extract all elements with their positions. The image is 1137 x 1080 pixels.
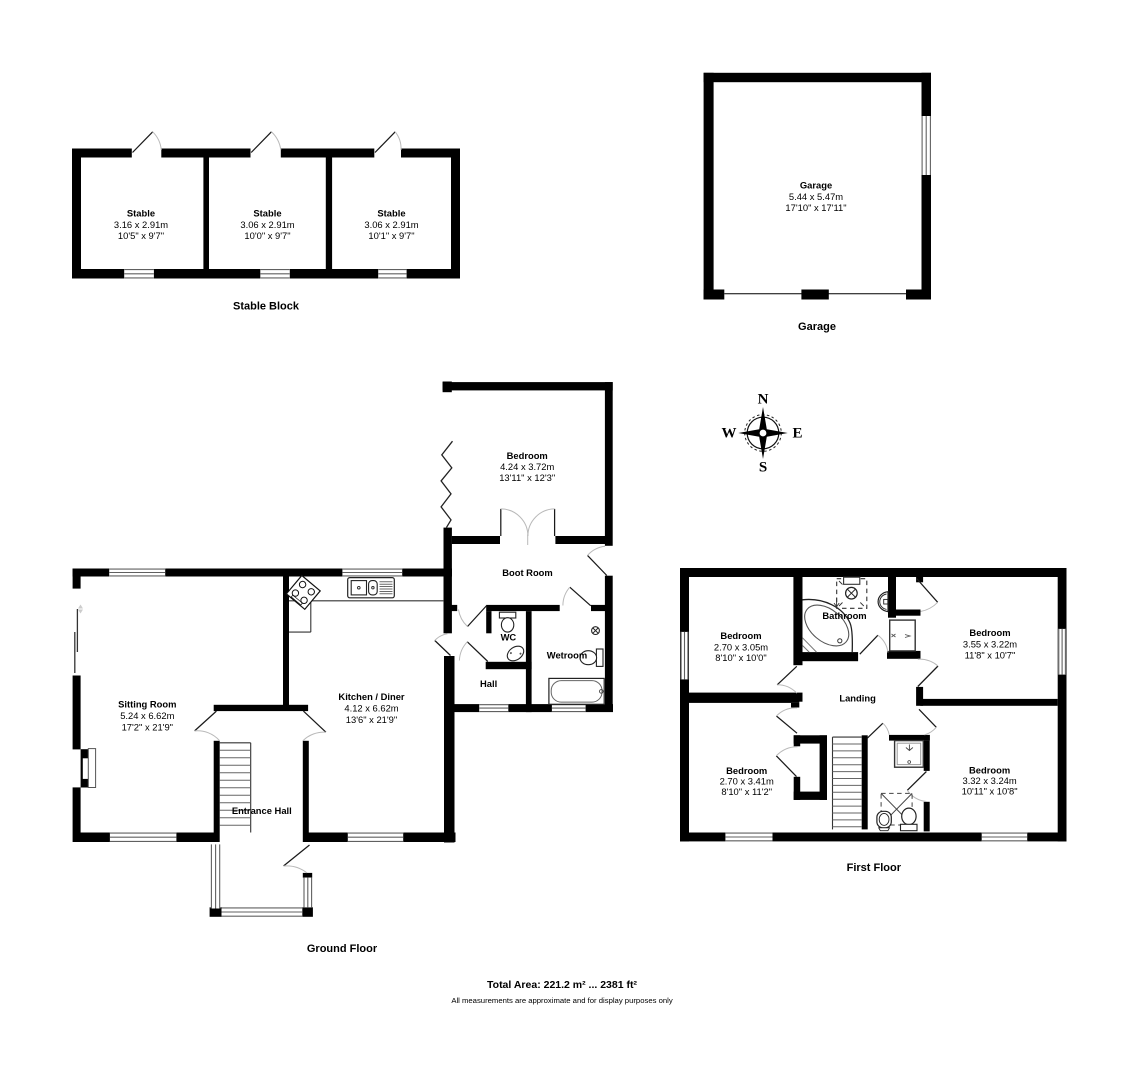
svg-text:E: E [792, 426, 802, 442]
svg-text:WC: WC [501, 632, 517, 643]
svg-text:Stable: Stable [377, 208, 405, 219]
svg-text:Bedroom: Bedroom [969, 627, 1010, 638]
svg-text:13'6" x 21'9": 13'6" x 21'9" [346, 714, 397, 725]
svg-text:Wetroom: Wetroom [547, 650, 587, 661]
svg-text:10'0" x 9'7": 10'0" x 9'7" [244, 230, 290, 241]
svg-text:Sitting Room: Sitting Room [118, 699, 176, 710]
svg-text:3.06 x 2.91m: 3.06 x 2.91m [364, 219, 418, 230]
svg-text:17'10" x 17'11": 17'10" x 17'11" [785, 202, 846, 213]
svg-text:Stable: Stable [253, 208, 281, 219]
svg-text:Garage: Garage [800, 180, 832, 191]
svg-text:S: S [759, 460, 767, 476]
svg-text:11'8" x 10'7": 11'8" x 10'7" [965, 650, 1016, 661]
svg-text:Total Area: 221.2 m² ... 2381: Total Area: 221.2 m² ... 2381 ft² [487, 979, 637, 991]
svg-text:10'5" x 9'7": 10'5" x 9'7" [118, 230, 164, 241]
svg-text:Bathroom: Bathroom [822, 610, 866, 621]
svg-text:2.70 x 3.41m: 2.70 x 3.41m [720, 776, 774, 787]
svg-text:3.06 x 2.91m: 3.06 x 2.91m [240, 219, 294, 230]
svg-text:4.12 x 6.62m: 4.12 x 6.62m [344, 703, 398, 714]
svg-text:W: W [722, 426, 737, 442]
svg-text:Bedroom: Bedroom [507, 450, 548, 461]
svg-text:Stable: Stable [127, 208, 155, 219]
svg-text:Hall: Hall [480, 678, 497, 689]
svg-text:8'10" x 11'2": 8'10" x 11'2" [721, 786, 772, 797]
svg-text:17'2" x 21'9": 17'2" x 21'9" [122, 722, 173, 733]
svg-text:13'11" x 12'3": 13'11" x 12'3" [499, 472, 555, 483]
svg-text:Bedroom: Bedroom [720, 630, 761, 641]
svg-text:3.32 x 3.24m: 3.32 x 3.24m [962, 775, 1016, 786]
svg-text:Bedroom: Bedroom [726, 765, 767, 776]
svg-text:All measurements are approxima: All measurements are approximate and for… [451, 996, 672, 1005]
svg-text:5.24 x 6.62m: 5.24 x 6.62m [120, 710, 174, 721]
svg-text:Landing: Landing [839, 693, 876, 704]
svg-text:4.24 x 3.72m: 4.24 x 3.72m [500, 461, 554, 472]
svg-text:Bedroom: Bedroom [969, 765, 1010, 776]
svg-text:10'11" x 10'8": 10'11" x 10'8" [962, 786, 1018, 797]
svg-text:First Floor: First Floor [847, 862, 902, 874]
svg-text:8'10" x 10'0": 8'10" x 10'0" [715, 652, 766, 663]
svg-text:2.70 x 3.05m: 2.70 x 3.05m [714, 641, 768, 652]
svg-text:Kitchen / Diner: Kitchen / Diner [338, 691, 405, 702]
svg-text:Garage: Garage [798, 321, 836, 333]
svg-text:3.16 x 2.91m: 3.16 x 2.91m [114, 219, 168, 230]
svg-text:3.55 x 3.22m: 3.55 x 3.22m [963, 639, 1017, 650]
svg-text:Entrance Hall: Entrance Hall [232, 805, 292, 816]
svg-text:N: N [758, 392, 769, 408]
svg-text:Stable Block: Stable Block [233, 301, 300, 313]
svg-text:5.44 x 5.47m: 5.44 x 5.47m [789, 191, 843, 202]
svg-text:10'1" x 9'7": 10'1" x 9'7" [368, 230, 414, 241]
svg-text:Ground Floor: Ground Floor [307, 943, 378, 955]
svg-text:Boot Room: Boot Room [502, 567, 553, 578]
